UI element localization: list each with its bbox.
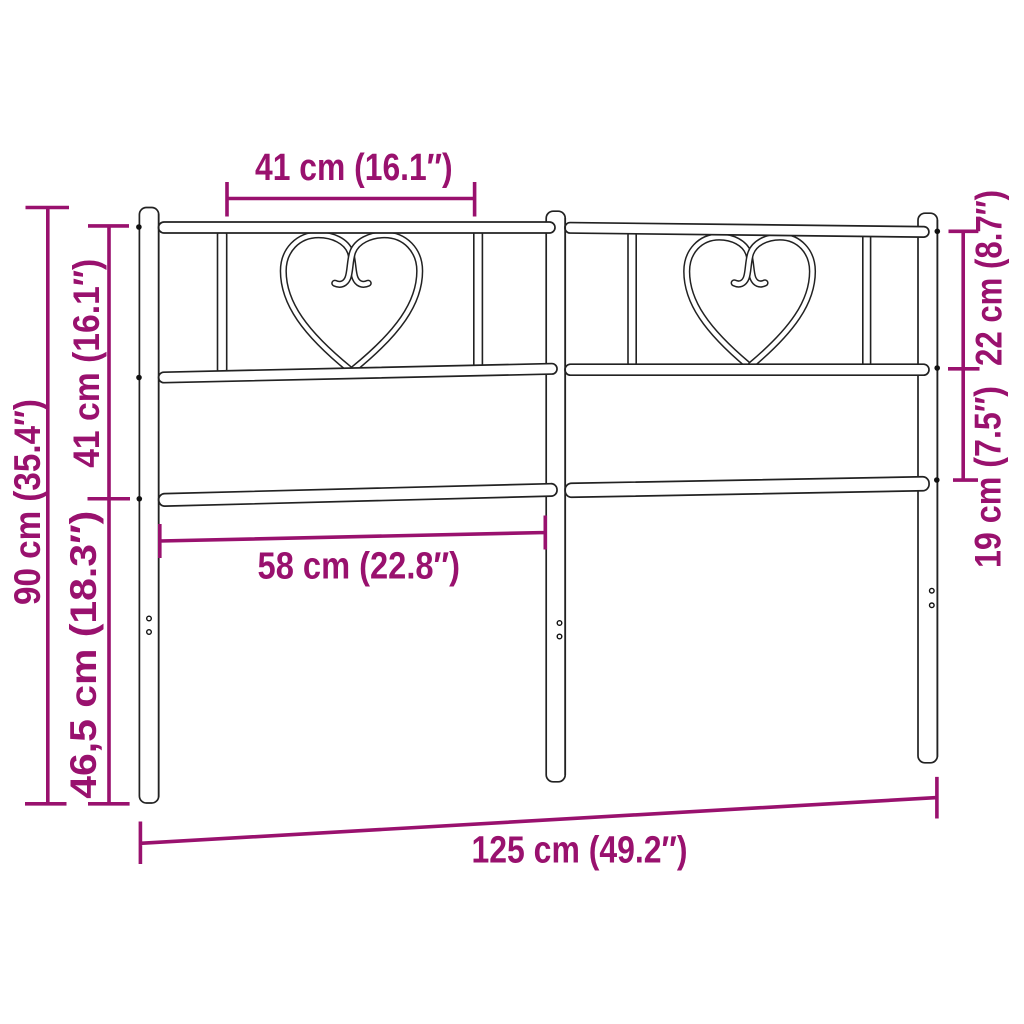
svg-text:58 cm (22.8″): 58 cm (22.8″) [258,546,461,588]
svg-text:125 cm (49.2″): 125 cm (49.2″) [472,830,688,872]
svg-text:41 cm (16.1″): 41 cm (16.1″) [255,147,453,189]
svg-text:90 cm (35.4″): 90 cm (35.4″) [7,399,48,605]
svg-text:41 cm (16.1″): 41 cm (16.1″) [66,259,107,468]
svg-text:19 cm (7.5″): 19 cm (7.5″) [968,386,1009,568]
svg-text:22 cm (8.7″): 22 cm (8.7″) [969,190,1010,366]
svg-text:46,5 cm (18.3″): 46,5 cm (18.3″) [63,511,104,799]
